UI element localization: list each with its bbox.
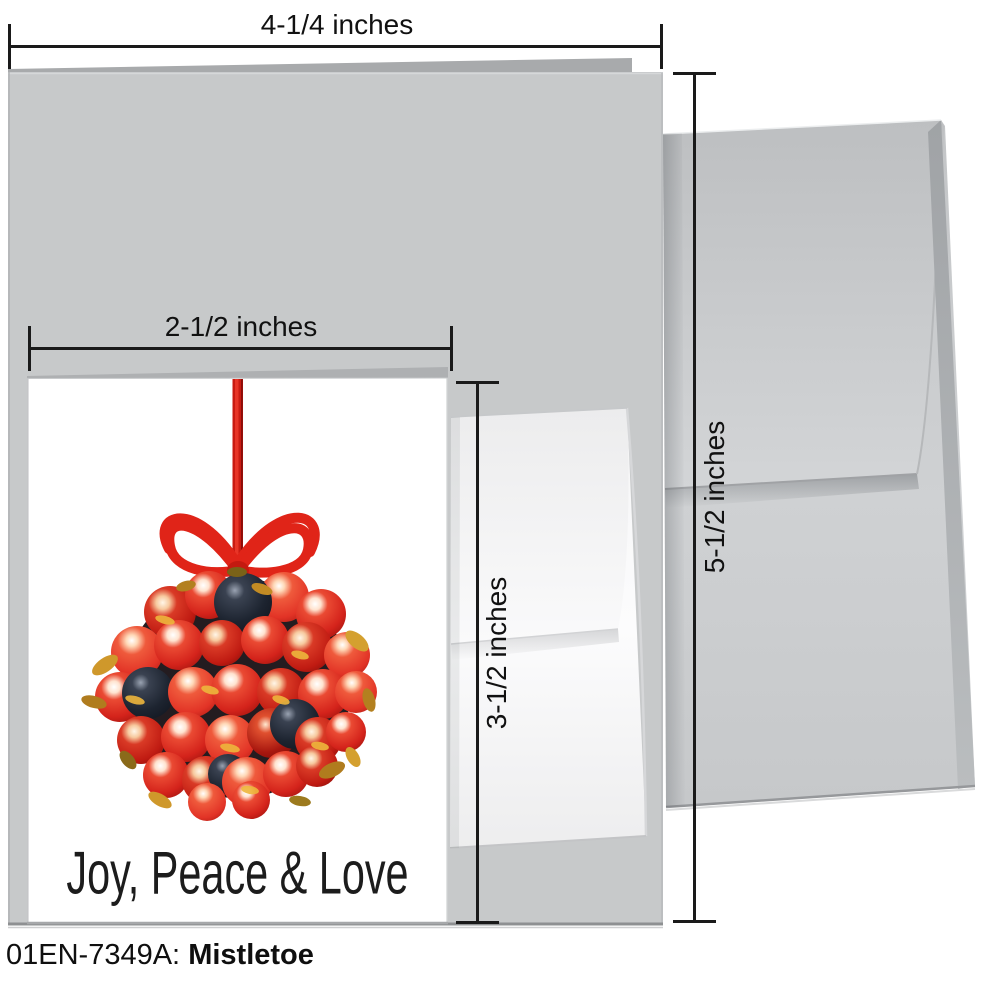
dimension-tick	[450, 326, 453, 371]
dimension-tick	[673, 72, 716, 75]
dimension-line-horizontal	[9, 45, 663, 48]
dimension-tick	[673, 920, 716, 923]
ribbon	[233, 379, 244, 571]
product-code: 01EN-7349A:	[6, 939, 180, 971]
dimension-label-note-card-height: 3-1/2 inches	[482, 553, 512, 753]
dimension-label-card-width: 4-1/4 inches	[167, 10, 507, 40]
dimension-tick	[8, 24, 11, 69]
product-mockup-page: { "product": { "code_label": "01EN-7349A…	[0, 0, 984, 984]
dimension-label-note-card-width: 2-1/2 inches	[51, 312, 431, 342]
dimension-line-vertical	[693, 72, 696, 923]
dimension-tick	[28, 326, 31, 371]
product-caption: 01EN-7349A: Mistletoe	[6, 938, 314, 972]
large-card-back-panel	[8, 58, 632, 74]
card-greeting-text: Joy, Peace & Love	[48, 842, 427, 903]
product-name: Mistletoe	[188, 939, 314, 971]
dimension-tick	[456, 921, 499, 924]
dimension-line-horizontal	[29, 347, 452, 350]
dimension-line-vertical	[476, 381, 479, 924]
dimension-tick	[456, 381, 499, 384]
dimension-tick	[660, 24, 663, 69]
small-envelope	[450, 408, 646, 848]
mockup-graphic	[0, 0, 984, 984]
dimension-label-card-height: 5-1/2 inches	[700, 397, 730, 597]
